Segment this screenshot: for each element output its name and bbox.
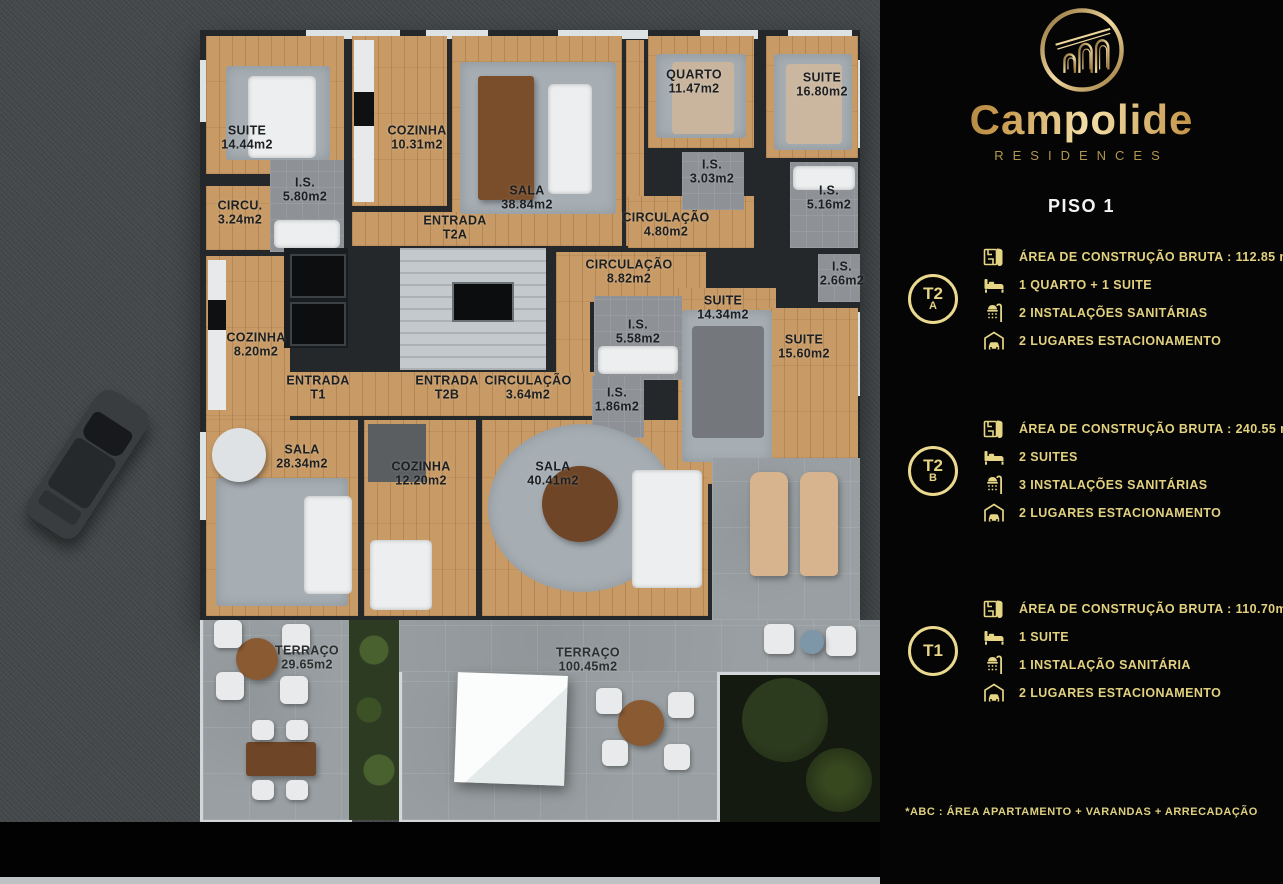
unit-badge: T1: [908, 626, 958, 676]
room-label: I.S.5.80m2: [283, 176, 327, 204]
palm-tree: [806, 748, 872, 812]
bed: [692, 326, 764, 438]
side-table: [800, 630, 824, 654]
spec-row: 1 INSTALAÇÃO SANITÁRIA: [982, 651, 1283, 679]
bathtub: [598, 346, 678, 374]
parked-car: [21, 384, 154, 544]
room-label: ENTRADAT1: [286, 374, 349, 402]
room-label: CIRCULAÇÃO3.64m2: [484, 374, 571, 402]
hedge: [349, 620, 399, 820]
chair: [252, 720, 274, 740]
dining-table: [478, 76, 534, 200]
room-label: SUITE14.44m2: [221, 124, 272, 152]
garage-icon: [982, 681, 1006, 705]
spec-row: ÁREA DE CONSTRUÇÃO BRUTA : 112.85 m2*: [982, 243, 1283, 271]
garage-icon: [982, 329, 1006, 353]
unit-specs: ÁREA DE CONSTRUÇÃO BRUTA : 110.70m2*1 SU…: [982, 595, 1283, 707]
page: SUITE14.44m2COZINHA10.31m2I.S.5.80m2CIRC…: [0, 0, 1283, 884]
cooktop: [208, 300, 226, 330]
unit-specs: ÁREA DE CONSTRUÇÃO BRUTA : 112.85 m2*1 Q…: [982, 243, 1283, 355]
unit-block-t1: T1ÁREA DE CONSTRUÇÃO BRUTA : 110.70m2*1 …: [880, 595, 1283, 707]
bed-icon: [982, 445, 1006, 469]
room-label: SALA28.34m2: [276, 443, 327, 471]
garage-icon: [982, 501, 1006, 525]
spec-text: 2 LUGARES ESTACIONAMENTO: [1019, 506, 1221, 520]
room-label: SALA40.41m2: [527, 460, 578, 488]
chair: [252, 780, 274, 800]
room-label: SUITE15.60m2: [778, 333, 829, 361]
room-label: ENTRADAT2B: [415, 374, 478, 402]
round-table: [618, 700, 664, 746]
room-label: ENTRADAT2A: [423, 214, 486, 242]
room-label: TERRAÇO29.65m2: [275, 644, 339, 672]
spec-row: 2 LUGARES ESTACIONAMENTO: [982, 679, 1283, 707]
kitchen-counter: [208, 260, 226, 410]
room-label: CIRCU.3.24m2: [218, 199, 263, 227]
round-dining-table: [212, 428, 266, 482]
spec-row: 2 LUGARES ESTACIONAMENTO: [982, 499, 1283, 527]
brand-block: Campolide RESIDENCES: [880, 6, 1283, 163]
room-label: I.S.5.16m2: [807, 184, 851, 212]
floor-title: PISO 1: [880, 196, 1283, 217]
spec-text: 2 LUGARES ESTACIONAMENTO: [1019, 686, 1221, 700]
spec-row: ÁREA DE CONSTRUÇÃO BRUTA : 240.55 m2*: [982, 415, 1283, 443]
hall-entrada-t2a: [352, 212, 622, 246]
brand-subtitle: RESIDENCES: [880, 148, 1283, 163]
spec-text: 1 SUITE: [1019, 630, 1069, 644]
plan-icon: [982, 597, 1006, 621]
unit-badge-label: T1: [923, 644, 943, 658]
bathtub: [274, 220, 340, 248]
armchair: [216, 672, 244, 700]
outdoor-dining-table: [246, 742, 316, 776]
spec-row: 3 INSTALAÇÕES SANITÁRIAS: [982, 471, 1283, 499]
spec-text: ÁREA DE CONSTRUÇÃO BRUTA : 240.55 m2*: [1019, 422, 1283, 436]
shower-icon: [982, 301, 1006, 325]
spec-row: 2 INSTALAÇÕES SANITÁRIAS: [982, 299, 1283, 327]
armchair: [280, 676, 308, 704]
tree: [742, 678, 828, 762]
brand-name: Campolide: [880, 96, 1283, 144]
chair: [596, 688, 622, 714]
aqueduct-logo-icon: [1038, 6, 1126, 94]
armchair: [826, 626, 856, 656]
spec-row: 2 LUGARES ESTACIONAMENTO: [982, 327, 1283, 355]
chair: [664, 744, 690, 770]
room-label: SUITE16.80m2: [796, 71, 847, 99]
spec-text: 1 INSTALAÇÃO SANITÁRIA: [1019, 658, 1191, 672]
armchair: [214, 620, 242, 648]
pergola-canopy: [454, 672, 568, 786]
room-label: I.S.5.58m2: [616, 318, 660, 346]
kitchen-island: [370, 540, 432, 610]
unit-block-t2a: T2AÁREA DE CONSTRUÇÃO BRUTA : 112.85 m2*…: [880, 243, 1283, 355]
spec-text: 1 QUARTO + 1 SUITE: [1019, 278, 1152, 292]
room-label: CIRCULAÇÃO4.80m2: [622, 211, 709, 239]
sofa: [632, 470, 702, 588]
sofa: [548, 84, 592, 194]
room-label: SALA38.84m2: [501, 184, 552, 212]
sun-lounger: [800, 472, 838, 576]
stair-void: [452, 282, 514, 322]
room-suite-1560: [758, 308, 858, 458]
footnote: *ABC : ÁREA APARTAMENTO + VARANDAS + ARR…: [880, 806, 1283, 818]
bed-icon: [982, 273, 1006, 297]
spec-row: 1 QUARTO + 1 SUITE: [982, 271, 1283, 299]
chair: [286, 780, 308, 800]
shower-icon: [982, 653, 1006, 677]
room-label: COZINHA8.20m2: [226, 331, 285, 359]
room-label: SUITE14.34m2: [697, 294, 748, 322]
chair: [286, 720, 308, 740]
room-label: COZINHA10.31m2: [387, 124, 446, 152]
cooktop: [354, 92, 374, 126]
room-label: I.S.2.66m2: [820, 260, 864, 288]
shower-icon: [982, 473, 1006, 497]
sun-lounger: [750, 472, 788, 576]
spec-text: ÁREA DE CONSTRUÇÃO BRUTA : 110.70m2*: [1019, 602, 1283, 616]
bed-icon: [982, 625, 1006, 649]
unit-block-t2b: T2BÁREA DE CONSTRUÇÃO BRUTA : 240.55 m2*…: [880, 415, 1283, 527]
spec-row: 2 SUITES: [982, 443, 1283, 471]
elevator-cab: [290, 254, 346, 298]
sofa: [304, 496, 352, 594]
room-label: I.S.1.86m2: [595, 386, 639, 414]
armchair: [764, 624, 794, 654]
room-label: QUARTO11.47m2: [666, 68, 722, 96]
plan-icon: [982, 417, 1006, 441]
spec-text: 2 SUITES: [1019, 450, 1078, 464]
chair: [602, 740, 628, 766]
spec-row: 1 SUITE: [982, 623, 1283, 651]
room-label: I.S.3.03m2: [690, 158, 734, 186]
unit-specs: ÁREA DE CONSTRUÇÃO BRUTA : 240.55 m2*2 S…: [982, 415, 1283, 527]
room-label: TERRAÇO100.45m2: [556, 646, 620, 674]
room-label: CIRCULAÇÃO8.82m2: [585, 258, 672, 286]
chair: [668, 692, 694, 718]
plan-icon: [982, 245, 1006, 269]
floorplan-render: SUITE14.44m2COZINHA10.31m2I.S.5.80m2CIRC…: [0, 0, 880, 822]
room-label: COZINHA12.20m2: [391, 460, 450, 488]
unit-badge: T2B: [908, 446, 958, 496]
elevator-cab: [290, 302, 346, 346]
unit-badge-sublabel: A: [929, 302, 937, 311]
unit-badge: T2A: [908, 274, 958, 324]
unit-badge-sublabel: B: [929, 474, 937, 483]
spec-text: 2 LUGARES ESTACIONAMENTO: [1019, 334, 1221, 348]
spec-text: ÁREA DE CONSTRUÇÃO BRUTA : 112.85 m2*: [1019, 250, 1283, 264]
spec-text: 2 INSTALAÇÕES SANITÁRIAS: [1019, 306, 1208, 320]
spec-row: ÁREA DE CONSTRUÇÃO BRUTA : 110.70m2*: [982, 595, 1283, 623]
spec-text: 3 INSTALAÇÕES SANITÁRIAS: [1019, 478, 1208, 492]
info-panel: Campolide RESIDENCES PISO 1 T2AÁREA DE C…: [880, 0, 1283, 884]
bottom-black-band: [0, 822, 880, 884]
